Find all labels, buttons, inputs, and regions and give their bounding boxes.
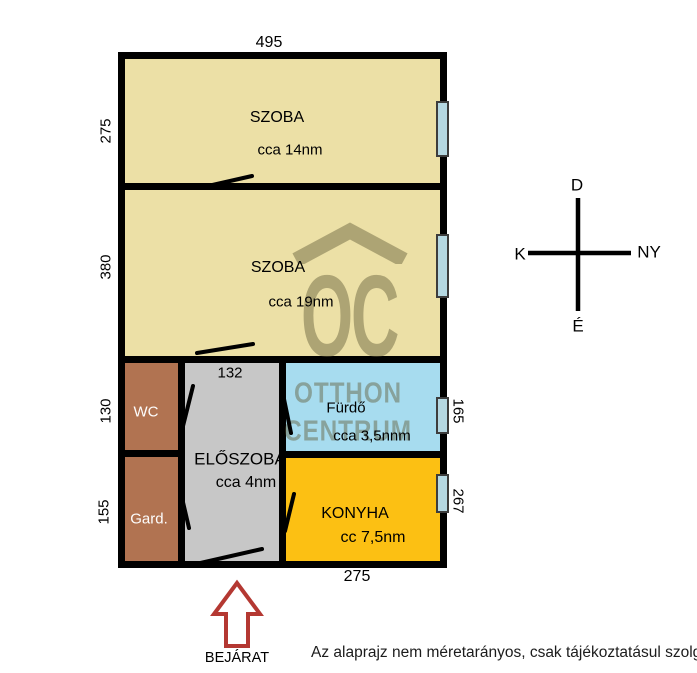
room-gard xyxy=(122,453,182,565)
dim-top-width: 495 xyxy=(256,35,283,51)
wall-wc-eloszoba xyxy=(178,356,185,568)
dim-bottom-width: 275 xyxy=(344,569,371,585)
entrance-label: BEJÁRAT xyxy=(205,651,269,666)
wall-szoba1-szoba2 xyxy=(118,183,447,190)
watermark-logo: OC xyxy=(301,249,397,383)
dim-szoba1-height: 275 xyxy=(99,118,114,143)
floor-plan-canvas: OC OTTHON CENTRUM SZOBA cca 14nm SZOBA c… xyxy=(0,0,697,673)
dim-wc-height: 130 xyxy=(99,398,114,423)
room-label-gard: Gard. xyxy=(130,512,168,527)
compass-label-up: D xyxy=(571,177,583,194)
room-area-szoba1: cca 14nm xyxy=(257,143,322,158)
room-area-eloszoba: cca 4nm xyxy=(216,475,276,491)
room-label-wc: WC xyxy=(134,405,159,420)
room-area-szoba2: cca 19nm xyxy=(268,295,333,310)
room-label-furdo: Fürdő xyxy=(326,401,365,416)
room-label-szoba2: SZOBA xyxy=(251,260,305,276)
compass-label-left: K xyxy=(514,246,525,263)
dim-szoba2-height: 380 xyxy=(99,254,114,279)
compass-label-right: NY xyxy=(637,244,661,261)
entrance-arrow-icon xyxy=(214,583,260,646)
room-area-furdo: cca 3,5nnm xyxy=(333,429,411,444)
wall-furdo-konyha xyxy=(279,451,447,458)
wall-outer-top xyxy=(118,52,447,59)
window-marker-szoba1 xyxy=(436,101,449,157)
room-label-eloszoba: ELŐSZOBA xyxy=(194,451,286,468)
compass-label-down: É xyxy=(572,318,583,335)
window-marker-furdo xyxy=(436,397,449,434)
wall-wc-gard xyxy=(118,450,185,457)
dim-eloszoba-width: 132 xyxy=(217,366,242,381)
window-marker-konyha xyxy=(436,474,449,513)
dim-furdo-height: 165 xyxy=(451,398,466,423)
window-marker-szoba2 xyxy=(436,234,449,298)
room-label-szoba1: SZOBA xyxy=(250,110,304,126)
room-label-konyha: KONYHA xyxy=(321,506,389,522)
dim-konyha-height: 267 xyxy=(451,488,466,513)
disclaimer-text: Az alaprajz nem méretarányos, csak tájék… xyxy=(311,644,697,662)
room-area-konyha: cc 7,5nm xyxy=(341,530,406,546)
dim-gard-height: 155 xyxy=(97,499,112,524)
wall-outer-left xyxy=(118,52,125,568)
